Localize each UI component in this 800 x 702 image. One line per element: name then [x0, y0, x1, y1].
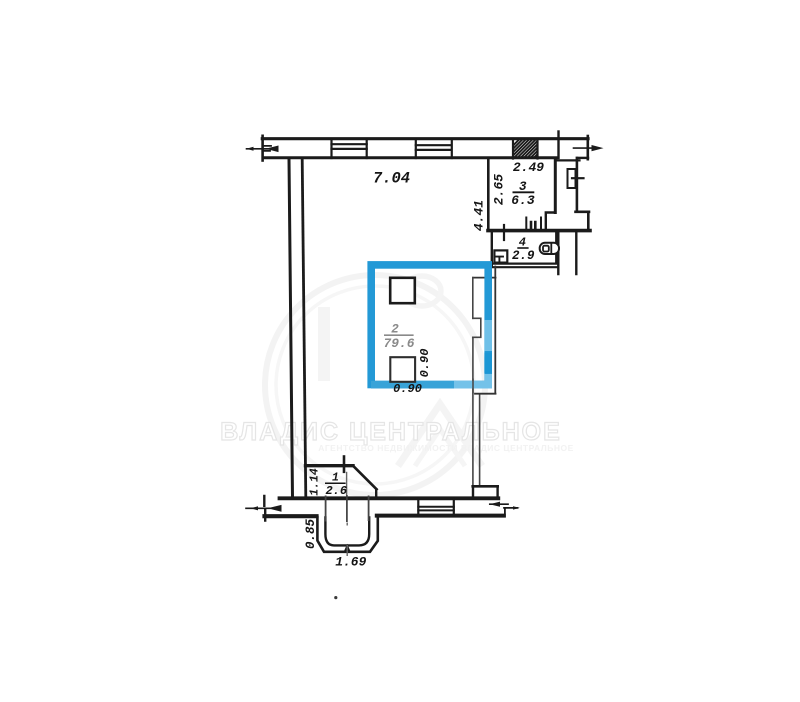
svg-text:2.49: 2.49 [513, 160, 544, 175]
svg-text:6.3: 6.3 [511, 193, 535, 208]
svg-text:79.6: 79.6 [383, 336, 414, 351]
svg-text:ВЛАДИС ЦЕНТРАЛЬНОЕ: ВЛАДИС ЦЕНТРАЛЬНОЕ [220, 418, 562, 446]
svg-text:2: 2 [391, 323, 399, 337]
svg-text:4.41: 4.41 [472, 200, 487, 231]
svg-text:АГЕНТСТВО НЕДВИЖИМОСТИ ВЛАДИС: АГЕНТСТВО НЕДВИЖИМОСТИ ВЛАДИС ЦЕНТРАЛЬНО… [318, 443, 574, 453]
svg-text:0.90: 0.90 [393, 382, 422, 396]
svg-text:0.85: 0.85 [304, 519, 318, 550]
svg-text:1.14: 1.14 [309, 468, 322, 496]
svg-text:1.69: 1.69 [335, 555, 366, 570]
svg-text:7.04: 7.04 [373, 169, 410, 187]
svg-text:0.90: 0.90 [418, 349, 432, 378]
svg-text:2.6: 2.6 [325, 484, 347, 498]
svg-text:2.65: 2.65 [492, 174, 507, 205]
svg-text:2.9: 2.9 [512, 249, 535, 263]
